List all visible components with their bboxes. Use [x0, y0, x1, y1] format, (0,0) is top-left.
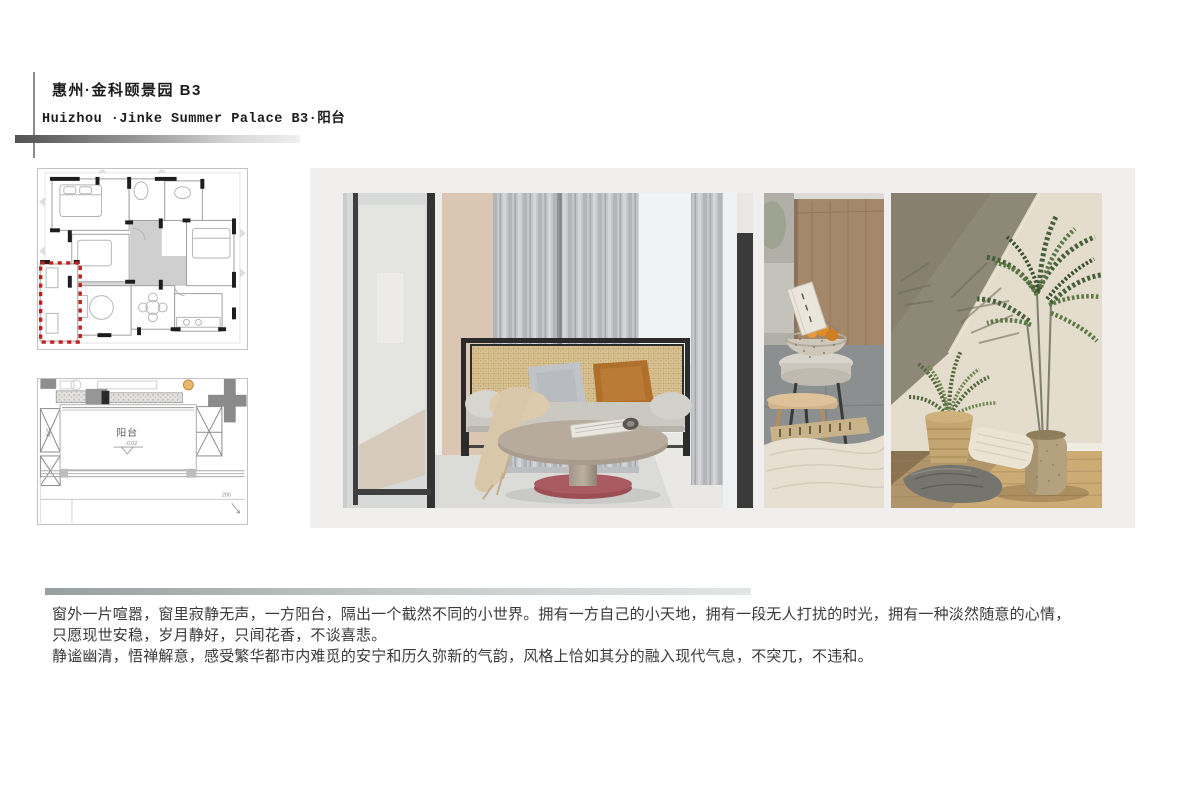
fern-basket	[925, 411, 973, 463]
mullion-shadow	[557, 193, 562, 351]
text-divider-bar	[45, 588, 751, 595]
floorplan-overall	[37, 168, 248, 350]
project-title-en: Huizhou ·Jinke Summer Palace B3·阳台	[42, 106, 345, 127]
sky-slice	[723, 193, 737, 508]
description-line-2: 只愿现世安稳，岁月静好，只闻花香，不谈喜悲。	[52, 625, 1157, 646]
floorplan-overall-svg	[38, 169, 247, 349]
door-frame-right	[737, 233, 753, 508]
dimension-label: 200	[222, 492, 231, 498]
interior-hints	[60, 380, 157, 390]
floorplan-balcony-svg: A/C 阳台 -0.02 200	[38, 379, 247, 524]
railing-lines	[40, 471, 244, 477]
wall-trim	[435, 193, 442, 455]
cream-blanket	[764, 435, 884, 508]
railing-post	[60, 469, 68, 478]
tall-vase	[1025, 430, 1067, 495]
floorplan-balcony-detail: A/C 阳台 -0.02 200	[37, 378, 248, 525]
wall-stub	[40, 379, 56, 389]
glass-door	[343, 193, 439, 508]
photo-panel	[310, 168, 1135, 528]
presentation-page: 惠州·金科颐景园 B3 Huizhou ·Jinke Summer Palace…	[0, 0, 1200, 800]
bolster-right	[650, 392, 692, 420]
wall-block-dark	[102, 391, 110, 405]
description-line-3: 静谧幽清，悟禅解意，感受繁华都市内难觅的安宁和历久弥新的气韵，风格上恰如其分的融…	[52, 646, 1157, 667]
description-text: 窗外一片喧嚣，窗里寂静无声，一方阳台，隔出一个截然不同的小世界。拥有一方自己的小…	[52, 604, 1157, 667]
door-edge	[794, 199, 798, 345]
hatched-wall	[109, 393, 182, 403]
railing-post	[186, 469, 196, 478]
project-title-cn: 惠州·金科颐景园 B3	[52, 79, 202, 100]
curtain-hem	[493, 467, 639, 473]
ac-label: A/C	[46, 428, 52, 437]
right-closet	[196, 407, 222, 456]
title-accent-line	[33, 72, 35, 158]
balcony-room-label: 阳台	[116, 426, 138, 439]
hatched-wall	[56, 391, 86, 403]
photo-side-table	[764, 193, 884, 508]
description-line-1: 窗外一片喧嚣，窗里寂静无声，一方阳台，隔出一个截然不同的小世界。拥有一方自己的小…	[52, 604, 1157, 625]
curtain-right	[691, 193, 723, 485]
photo-balcony-sofa	[343, 193, 753, 508]
title-underline-bar	[15, 135, 300, 143]
balcony-level-label: -0.02	[125, 441, 137, 447]
stove-hint	[183, 380, 193, 390]
photo-plants	[891, 193, 1102, 508]
dimension-arrow	[232, 503, 240, 513]
